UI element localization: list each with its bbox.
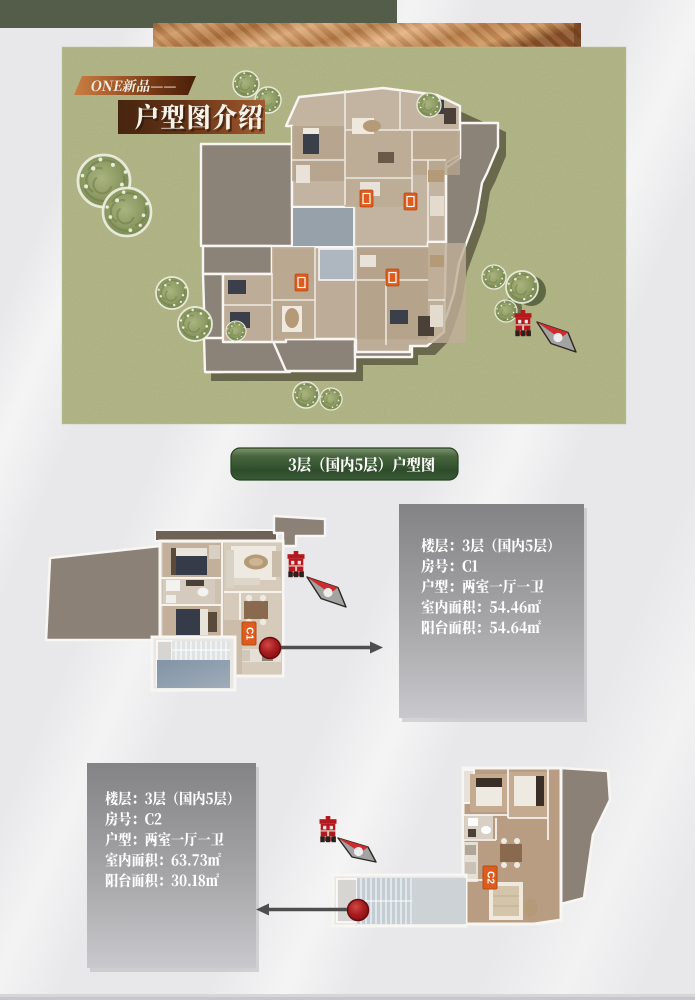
svg-text:C1: C1 xyxy=(244,627,255,640)
svg-text:C2: C2 xyxy=(485,871,496,884)
